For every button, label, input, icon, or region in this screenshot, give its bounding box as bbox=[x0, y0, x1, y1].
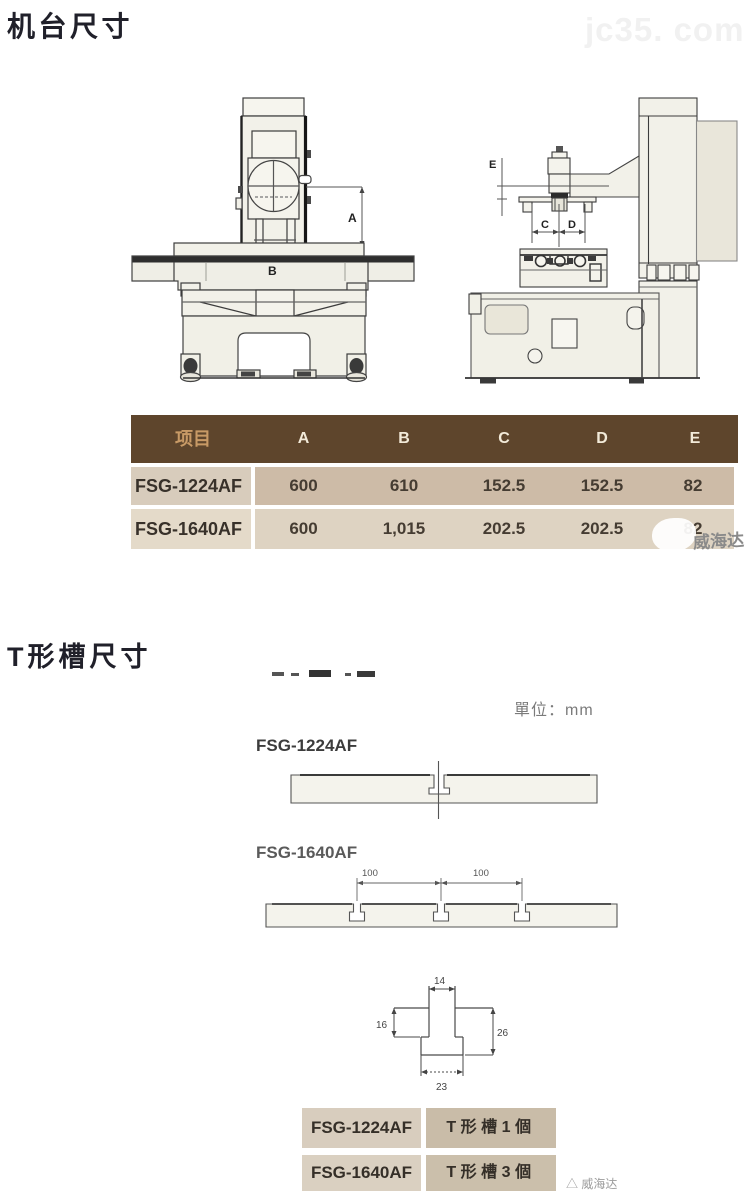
svg-text:100: 100 bbox=[473, 868, 489, 879]
svg-text:D: D bbox=[568, 219, 576, 231]
svg-text:A: A bbox=[348, 211, 357, 225]
svg-text:100: 100 bbox=[362, 868, 378, 879]
svg-text:C: C bbox=[541, 219, 549, 231]
svg-text:26: 26 bbox=[497, 1028, 509, 1039]
svg-text:23: 23 bbox=[436, 1082, 448, 1093]
svg-text:E: E bbox=[489, 159, 496, 171]
svg-text:16: 16 bbox=[376, 1020, 388, 1031]
svg-text:14: 14 bbox=[434, 976, 446, 987]
svg-text:B: B bbox=[268, 264, 277, 278]
